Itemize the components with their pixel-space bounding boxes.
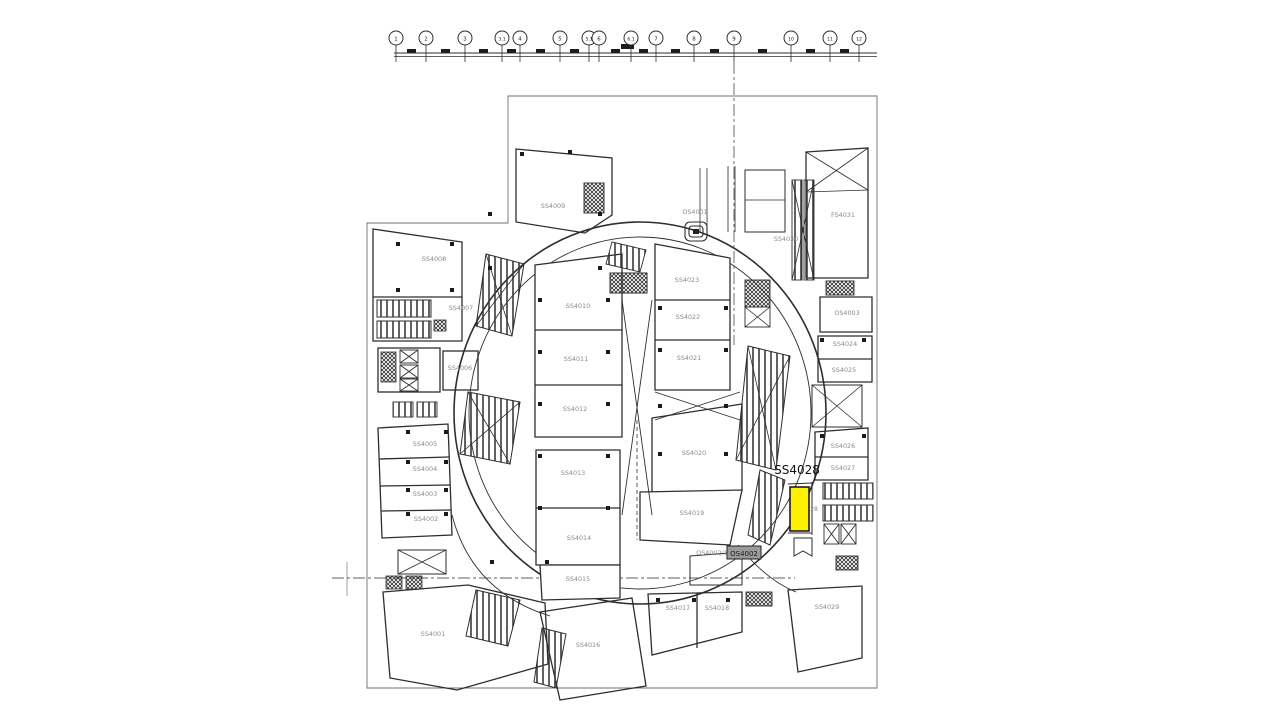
grid-bubble-3.1: 3.1 bbox=[495, 31, 509, 62]
grid-bubble-number: 6 bbox=[597, 36, 601, 42]
highlighted-room-ss4028[interactable] bbox=[790, 487, 809, 531]
room-label-ss4004: SS4004 bbox=[413, 465, 437, 473]
grid-bubble-2: 2 bbox=[419, 31, 433, 62]
room-label-ss4027: SS4027 bbox=[831, 464, 855, 472]
room-label-ss4025: SS4025 bbox=[832, 366, 856, 374]
elevator-shafts bbox=[400, 350, 418, 391]
grid-bubble-number: 8 bbox=[692, 36, 696, 42]
partial-room-label: 28 bbox=[810, 506, 818, 513]
grid-bubble-12: 12 bbox=[852, 31, 866, 62]
floor-plan-page: OS4002 SS4028 28 1233.1455.166.178910111… bbox=[0, 0, 1280, 720]
room-label-ss4021: SS4021 bbox=[677, 354, 701, 362]
grid-bubble-3: 3 bbox=[458, 31, 472, 62]
room-label-ss4018: SS4018 bbox=[705, 604, 729, 612]
room-label-ss4019: SS4019 bbox=[680, 509, 704, 517]
room-label-ss4016: SS4016 bbox=[576, 641, 600, 649]
room-label-ss4001: SS4001 bbox=[421, 630, 445, 638]
grid-bubble-number: 5 bbox=[558, 36, 561, 42]
grid-bubble-number: 4 bbox=[518, 36, 522, 42]
room-label-ss4002: SS4002 bbox=[414, 515, 438, 523]
room-label-fs4031: FS4031 bbox=[831, 211, 855, 219]
grid-bubble-11: 11 bbox=[823, 31, 837, 62]
grid-bubble-number: 3.1 bbox=[498, 36, 505, 42]
grid-bubble-number: 10 bbox=[788, 36, 794, 42]
grid-bubble-number: 9 bbox=[732, 36, 736, 42]
grid-bubble-8: 8 bbox=[687, 31, 701, 62]
highlight-label-ss4028: SS4028 bbox=[774, 463, 820, 477]
room-label-ss4010: SS4010 bbox=[566, 302, 590, 310]
room-label-os4003: OS4003 bbox=[834, 309, 859, 317]
grid-dimension-bar bbox=[394, 44, 877, 57]
room-label-ss4020: SS4020 bbox=[682, 449, 706, 457]
room-label-ss4030: SS4030 bbox=[774, 235, 798, 243]
room-label-os4001: OS4001 bbox=[682, 208, 707, 216]
room-label-ss4023: SS4023 bbox=[675, 276, 699, 284]
room-label-ss4003: SS4003 bbox=[413, 490, 437, 498]
skylight-icon bbox=[685, 222, 707, 241]
floor-plan-drawing: OS4002 SS4028 28 1233.1455.166.178910111… bbox=[0, 0, 1280, 720]
grid-bubble-number: 2 bbox=[424, 36, 427, 42]
room-label-ss4008: SS4008 bbox=[422, 255, 446, 263]
room-label-ss4024: SS4024 bbox=[833, 340, 857, 348]
grid-bubble-number: 1 bbox=[394, 36, 397, 42]
grid-bubble-number: 7 bbox=[654, 36, 657, 42]
room-label-ss4009: SS4009 bbox=[541, 202, 565, 210]
os4002-boxed-label: OS4002 bbox=[727, 546, 761, 559]
grid-bubble-number: 6.1 bbox=[627, 36, 634, 42]
grid-bubble-7: 7 bbox=[649, 31, 663, 62]
room-label-ss4022: SS4022 bbox=[676, 313, 700, 321]
escalator-bank-topright bbox=[792, 180, 814, 280]
room-label-ss4026: SS4026 bbox=[831, 442, 855, 450]
room-label-ss4017: SS4017 bbox=[666, 604, 690, 612]
grid-bubble-number: 3 bbox=[463, 36, 466, 42]
elevator-shafts-right bbox=[824, 524, 856, 544]
room-label-ss4029: SS4029 bbox=[815, 603, 839, 611]
os4002-box-text: OS4002 bbox=[730, 550, 758, 558]
grid-bubble-6: 6 bbox=[592, 31, 606, 62]
room-label-os4002-1: OS4002/1 bbox=[696, 549, 728, 557]
room-label-ss4015: SS4015 bbox=[566, 575, 590, 583]
room-label-ss4011: SS4011 bbox=[564, 355, 588, 363]
dimension-text-marks bbox=[407, 44, 849, 53]
room-label-ss4012: SS4012 bbox=[563, 405, 587, 413]
grid-bubble-5: 5 bbox=[553, 31, 567, 62]
grid-bubble-4: 4 bbox=[513, 31, 527, 62]
grid-bubble-1: 1 bbox=[389, 31, 403, 62]
grid-bubble-10: 10 bbox=[784, 31, 798, 62]
grid-bubble-9: 9 bbox=[727, 31, 741, 62]
grid-bubble-number: 11 bbox=[827, 36, 833, 42]
grid-bubble-number: 12 bbox=[856, 36, 862, 42]
room-label-ss4005: SS4005 bbox=[413, 440, 437, 448]
room-label-ss4007: SS4007 bbox=[449, 304, 473, 312]
room-label-ss4013: SS4013 bbox=[561, 469, 585, 477]
room-label-ss4006: SS4006 bbox=[448, 364, 472, 372]
floor-plan-linework bbox=[373, 148, 873, 700]
room-label-ss4014: SS4014 bbox=[567, 534, 591, 542]
